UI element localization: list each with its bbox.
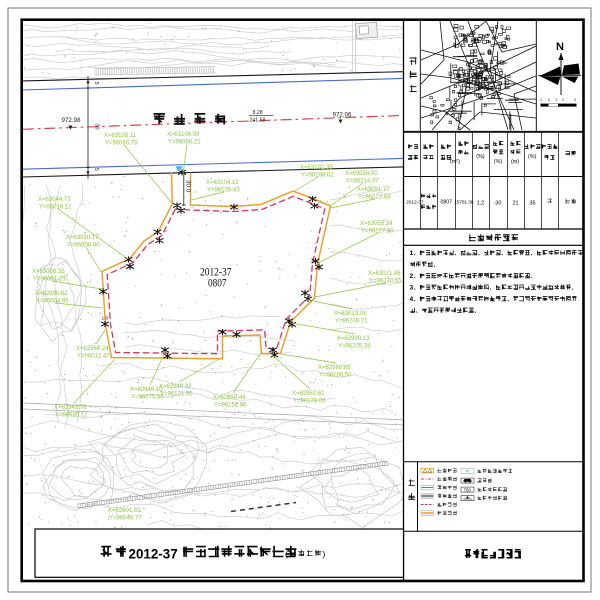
svg-text:Y=96188.02: Y=96188.02	[301, 173, 334, 179]
svg-text:1.0: 1.0	[102, 316, 109, 322]
svg-text:30: 30	[94, 124, 100, 130]
svg-text:X=63013.08: X=63013.08	[334, 311, 367, 317]
svg-text:2: 2	[562, 98, 564, 102]
svg-text:Y=96086.21: Y=96086.21	[168, 140, 201, 146]
svg-text:X=62943.76: X=62943.76	[54, 405, 87, 411]
svg-text:15781.36: 15781.36	[454, 200, 474, 205]
svg-text:0807: 0807	[208, 276, 227, 290]
svg-text:Y=96075.58: Y=96075.58	[131, 395, 164, 401]
svg-text:X=63021.46: X=63021.46	[368, 271, 401, 277]
svg-text:5: 5	[93, 168, 99, 171]
svg-text:X=62990.13: X=62990.13	[337, 336, 370, 342]
svg-text:X=62968.24: X=62968.24	[76, 346, 109, 352]
svg-text:3: 3	[574, 98, 576, 102]
svg-text:0807: 0807	[441, 200, 453, 206]
svg-text:): )	[323, 549, 326, 559]
svg-text:X=63091.77: X=63091.77	[357, 187, 390, 193]
svg-text:(: (	[285, 549, 288, 559]
svg-text:0: 0	[548, 98, 550, 102]
svg-text:1: 1	[540, 98, 542, 102]
svg-text:X=63102.35: X=63102.35	[300, 165, 333, 171]
svg-text:X=62950.44: X=62950.44	[213, 395, 246, 401]
svg-text:972.06: 972.06	[333, 112, 352, 119]
svg-text:X=63104.12: X=63104.12	[206, 180, 239, 186]
svg-text:2: 2	[410, 273, 414, 280]
svg-text:Y=96178.06: Y=96178.06	[293, 399, 326, 405]
svg-text:3: 3	[410, 284, 414, 291]
svg-text:1: 1	[410, 250, 414, 257]
svg-text:X=62948.32: X=62948.32	[159, 384, 192, 390]
svg-text:35: 35	[530, 201, 536, 207]
svg-text:Y=96209.71: Y=96209.71	[335, 319, 368, 325]
svg-text:Y=96152.80: Y=96152.80	[214, 403, 247, 409]
svg-text:(%): (%)	[476, 154, 485, 160]
svg-text:Y=96223.68: Y=96223.68	[358, 195, 391, 201]
svg-text:1.2: 1.2	[477, 201, 485, 207]
svg-text:Y=96196.50: Y=96196.50	[319, 373, 352, 379]
svg-text:Y=96001.23: Y=96001.23	[33, 277, 66, 283]
svg-text:X=63105.11: X=63105.11	[104, 133, 137, 139]
svg-text:N: N	[556, 41, 564, 53]
svg-text:X=62960.85: X=62960.85	[318, 365, 351, 371]
svg-text:(m): (m)	[511, 159, 519, 165]
svg-text:Y=96205.34: Y=96205.34	[338, 344, 371, 350]
svg-text:Y=96105.43: Y=96105.43	[207, 188, 240, 194]
svg-text:Y=96230.55: Y=96230.55	[369, 279, 402, 285]
svg-text:Y=96012.47: Y=96012.47	[77, 354, 110, 360]
svg-text:972.98: 972.98	[62, 117, 81, 124]
svg-text:5: 5	[93, 82, 99, 85]
svg-text:Y=96048.77: Y=96048.77	[109, 516, 142, 522]
svg-text:21: 21	[513, 201, 519, 207]
svg-text:30.0: 30.0	[185, 180, 192, 193]
svg-text:X=63030.17: X=63030.17	[66, 235, 99, 241]
svg-text:Y=96016.12: Y=96016.12	[39, 205, 72, 211]
svg-text:(%): (%)	[494, 159, 503, 165]
svg-text:(%): (%)	[528, 154, 537, 160]
svg-text:Y=96066.78: Y=96066.78	[105, 141, 138, 147]
svg-text:Y=96008.60: Y=96008.60	[67, 243, 100, 249]
svg-text:X=62990.62: X=62990.62	[35, 291, 68, 297]
svg-text:2012-37: 2012-37	[406, 200, 424, 205]
svg-text:Y=96214.37: Y=96214.37	[346, 179, 379, 185]
svg-text:Y=96023.12: Y=96023.12	[55, 413, 88, 419]
svg-text:(m²): (m²)	[450, 159, 460, 165]
svg-text:1: 1	[555, 98, 557, 102]
svg-text:X=63055.24: X=63055.24	[360, 221, 393, 227]
svg-text:X=62901.55: X=62901.55	[108, 508, 141, 514]
svg-text:X=62946.10: X=62946.10	[130, 387, 163, 393]
svg-text:2012-37: 2012-37	[129, 546, 178, 561]
svg-text:241.58: 241.58	[250, 118, 266, 124]
svg-text:30: 30	[495, 201, 501, 207]
svg-text:Y=96227.90: Y=96227.90	[361, 229, 394, 235]
svg-text:X=63106.98: X=63106.98	[167, 132, 200, 138]
svg-text:X=63008.35: X=63008.35	[32, 269, 65, 275]
svg-text:X=62952.61: X=62952.61	[292, 391, 325, 397]
svg-text:750: 750	[464, 487, 472, 492]
svg-text:X=63044.73: X=63044.73	[38, 197, 71, 203]
svg-text:Y=96004.95: Y=96004.95	[36, 299, 69, 305]
svg-text:Y=96121.95: Y=96121.95	[160, 392, 193, 398]
svg-text:4: 4	[410, 296, 414, 303]
svg-text:X=63098.50: X=63098.50	[345, 171, 378, 177]
